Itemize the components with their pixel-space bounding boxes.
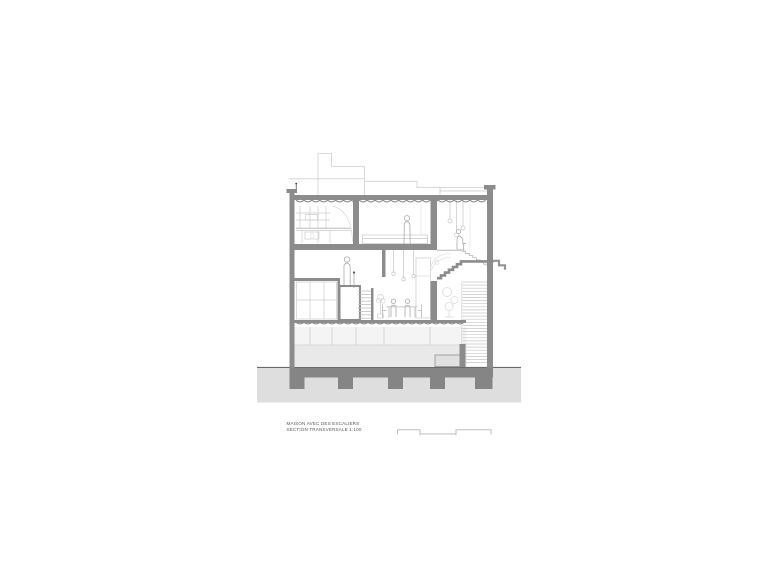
pier-5 [475, 378, 493, 390]
pier-1 [290, 378, 305, 390]
doorway-arch-decor [431, 254, 451, 271]
bedroom [363, 205, 428, 244]
scale-bar [398, 430, 491, 436]
stair-stringer [371, 288, 374, 320]
chair-right [418, 305, 422, 318]
antenna-tip [295, 183, 297, 185]
left-parapet-cap [287, 189, 298, 193]
platform-box [340, 286, 361, 320]
closet-under-platform [297, 282, 337, 319]
split-level [294, 250, 386, 320]
stair-sweep-arc [333, 206, 353, 242]
floor-slabs [294, 195, 488, 324]
middle-slab [294, 244, 431, 250]
pier-3 [388, 378, 403, 390]
handrail-post-cap [353, 271, 355, 273]
roof-soffit-wave [296, 200, 486, 202]
foundation-slab [290, 368, 494, 378]
figure-seated-dining-right [405, 299, 410, 317]
roof-terrace-railing [440, 188, 488, 196]
figure-seated-dining-left [391, 299, 396, 317]
outside-steps [493, 261, 505, 270]
partition-right-upper [431, 200, 438, 250]
pier-2 [338, 378, 353, 390]
stair-stub-wall [460, 344, 466, 367]
top-floor [296, 201, 470, 249]
right-wall [487, 189, 493, 368]
hanging-wall [382, 250, 386, 277]
raised-floor [294, 278, 340, 281]
dining-pendant-lamps [392, 250, 415, 281]
stairwell-plants [443, 288, 459, 318]
left-wall [290, 191, 295, 377]
drawing-sheet: MAISON AVEC DES ESCALIERS SECTION TRANSV… [0, 0, 780, 585]
section-drawing: MAISON AVEC DES ESCALIERS SECTION TRANSV… [0, 0, 780, 585]
human-figures [344, 216, 466, 317]
ground-line [257, 367, 521, 368]
figure-seated-stairwell [456, 229, 466, 250]
figure-standing-platform [344, 257, 350, 286]
pier-4 [430, 378, 445, 390]
right-parapet-cap [484, 185, 496, 190]
partition-right-lower [431, 281, 438, 320]
lower-flight-treads [463, 282, 488, 363]
rear-roofline [365, 181, 441, 187]
ground-floor-upper [295, 327, 467, 345]
ground-floor [295, 327, 467, 367]
partition-top-left [353, 200, 359, 244]
roof-slab [294, 195, 488, 200]
dining-plant [376, 295, 385, 319]
scale-bar-line [398, 430, 491, 434]
chair-left [383, 305, 387, 318]
tall-cabinet [416, 258, 431, 318]
upper-flight-steps [462, 251, 487, 266]
caption-line-2: SECTION TRANSVERSALE 1:100 [287, 427, 362, 432]
stairwell-pendant-lights [448, 201, 470, 249]
context-outlines [289, 154, 488, 196]
ground-floor-box [435, 355, 461, 367]
kitchen-unit [296, 206, 353, 243]
figure-standing-bedroom [404, 216, 410, 244]
bed [363, 235, 428, 244]
caption-line-1: MAISON AVEC DES ESCALIERS [287, 421, 360, 426]
chimney-outline [318, 154, 365, 196]
